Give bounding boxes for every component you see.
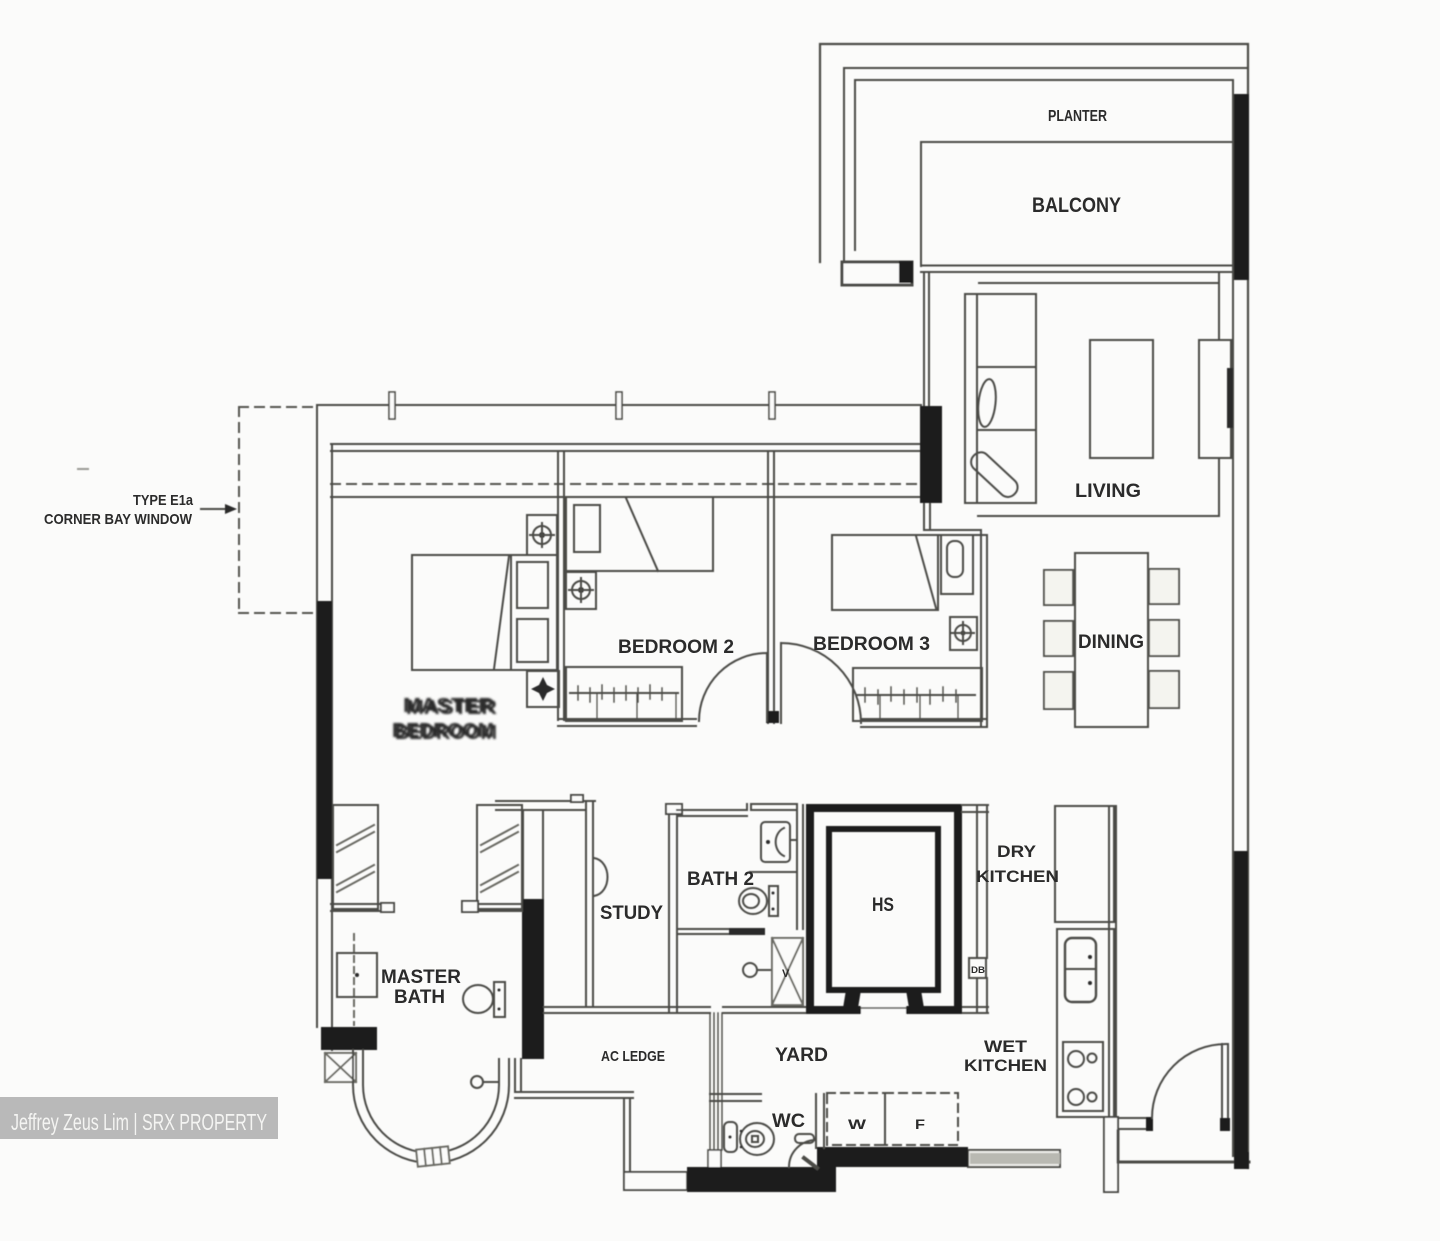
- svg-text:BATH: BATH: [394, 987, 445, 1008]
- svg-text:BATH 2: BATH 2: [687, 869, 754, 890]
- svg-text:Jeffrey Zeus Lim | SRX PROPERT: Jeffrey Zeus Lim | SRX PROPERTY: [11, 1109, 267, 1135]
- svg-text:LIVING: LIVING: [1075, 481, 1141, 502]
- svg-text:BALCONY: BALCONY: [1032, 194, 1121, 217]
- svg-text:MASTER: MASTER: [406, 697, 498, 719]
- svg-text:KITCHEN: KITCHEN: [964, 1056, 1047, 1075]
- svg-text:STUDY: STUDY: [600, 903, 663, 924]
- svg-text:PLANTER: PLANTER: [1048, 108, 1107, 125]
- svg-text:WET: WET: [984, 1037, 1028, 1056]
- svg-text:BEDROOM 3: BEDROOM 3: [813, 634, 930, 655]
- svg-text:MASTER: MASTER: [381, 967, 461, 988]
- svg-text:KITCHEN: KITCHEN: [976, 867, 1059, 886]
- svg-text:V: V: [782, 968, 790, 980]
- svg-text:WC: WC: [772, 1111, 805, 1132]
- svg-text:DB: DB: [971, 965, 986, 975]
- svg-text:TYPE E1a: TYPE E1a: [133, 492, 194, 509]
- svg-text:HS: HS: [872, 895, 894, 916]
- svg-text:YARD: YARD: [775, 1045, 828, 1066]
- svg-text:W: W: [848, 1116, 867, 1132]
- svg-text:F: F: [915, 1116, 926, 1132]
- svg-text:DRY: DRY: [997, 842, 1037, 861]
- svg-text:AC LEDGE: AC LEDGE: [601, 1048, 665, 1065]
- svg-text:CORNER BAY WINDOW: CORNER BAY WINDOW: [44, 511, 193, 528]
- svg-text:BEDROOM: BEDROOM: [395, 722, 497, 744]
- svg-text:DINING: DINING: [1078, 632, 1144, 653]
- svg-text:BEDROOM 2: BEDROOM 2: [618, 637, 734, 658]
